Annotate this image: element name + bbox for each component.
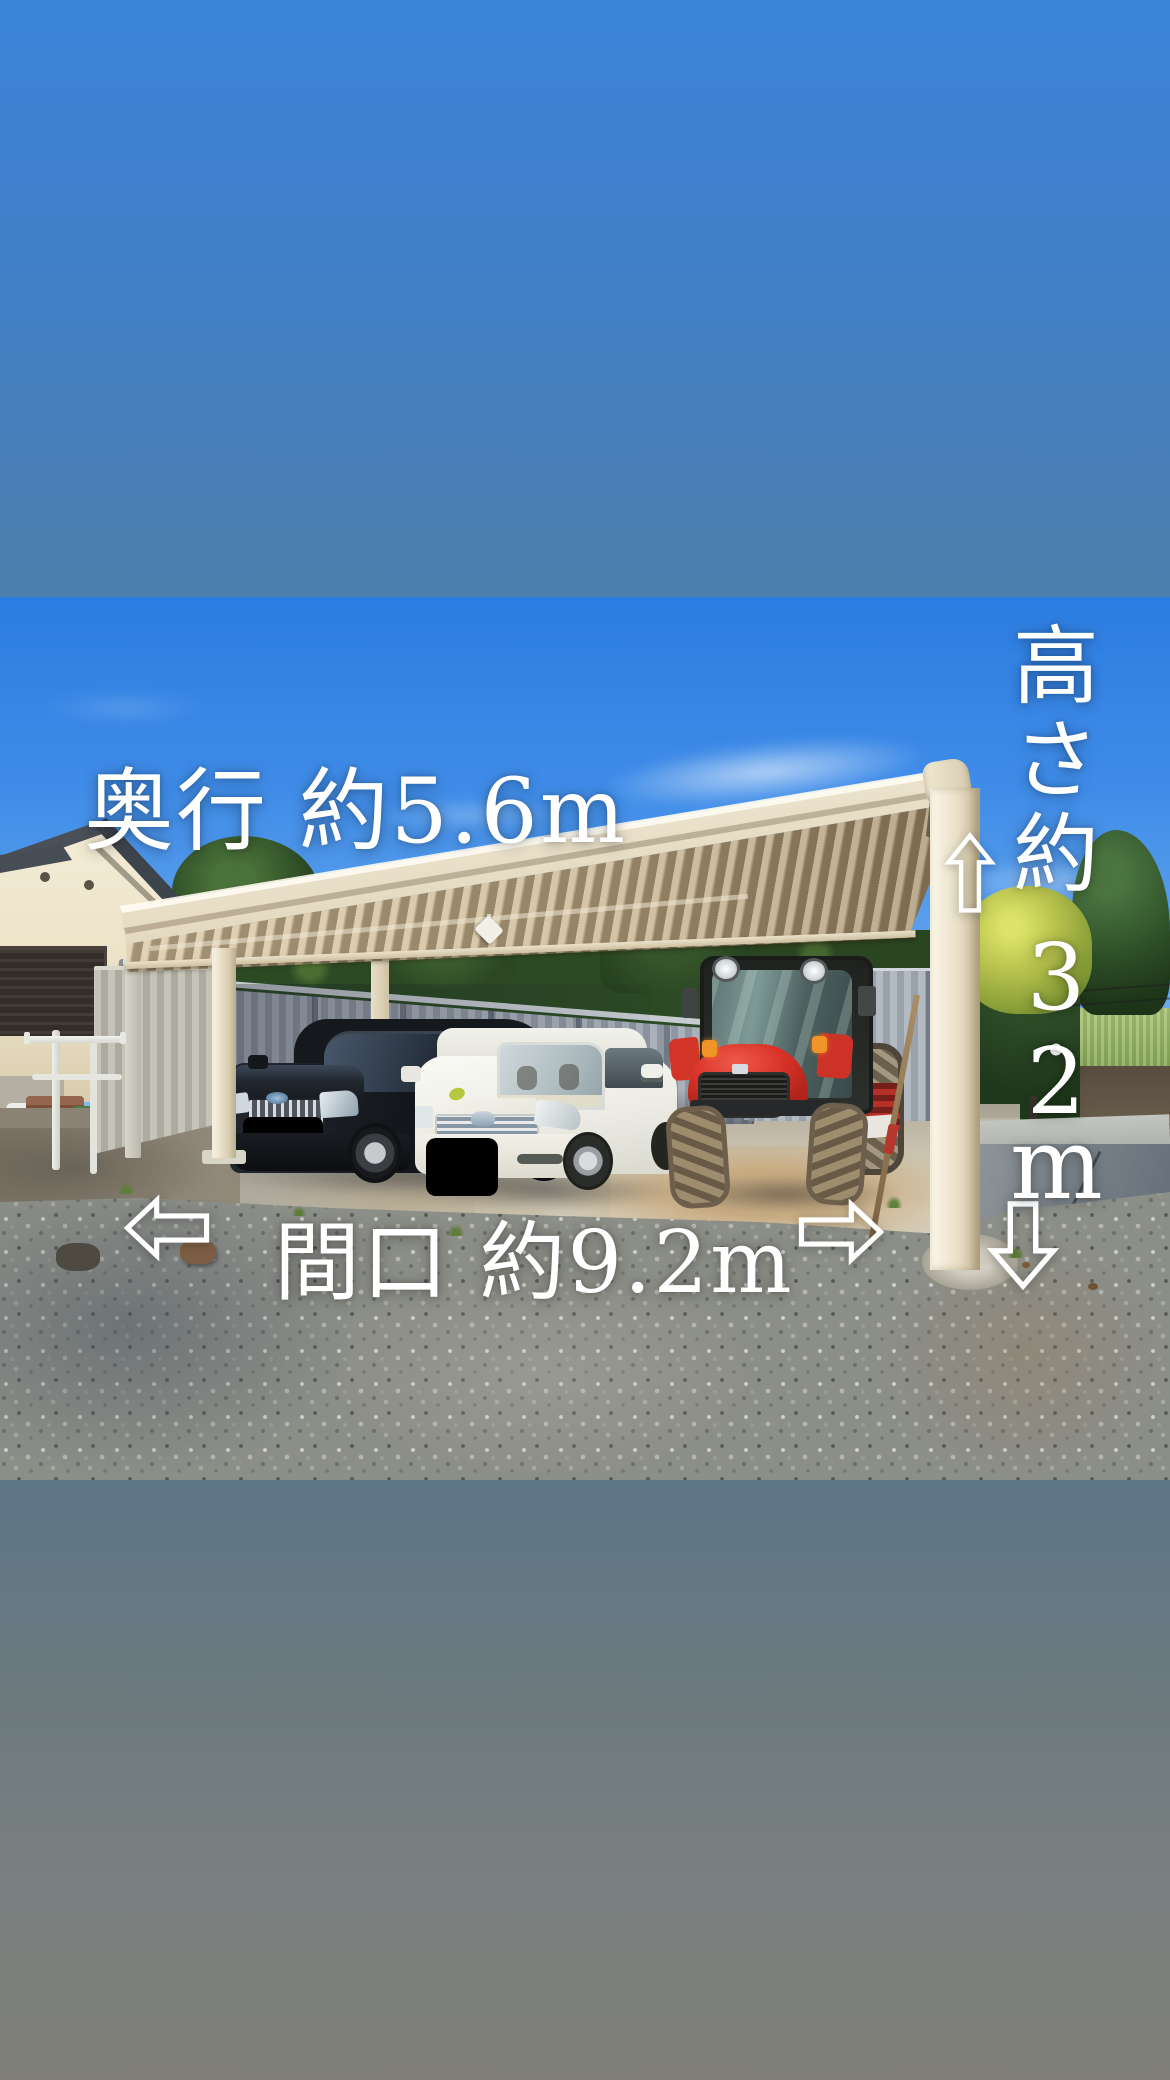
white-minivan bbox=[413, 1026, 681, 1206]
rock bbox=[56, 1243, 100, 1271]
tractor-signal bbox=[812, 1036, 827, 1053]
height-char: 高 bbox=[1010, 624, 1102, 710]
laundry-pole bbox=[90, 1036, 97, 1174]
height-char: さ bbox=[1010, 718, 1102, 804]
van-wheel bbox=[563, 1132, 613, 1190]
laundry-hook bbox=[120, 1032, 126, 1044]
van-mirror bbox=[401, 1066, 421, 1082]
tractor-headlight bbox=[800, 958, 828, 984]
van-seat bbox=[517, 1066, 537, 1090]
height-char: 約 bbox=[1010, 812, 1102, 898]
tractor-logo bbox=[732, 1064, 748, 1074]
debris bbox=[1088, 1283, 1098, 1290]
width-annotation: 間口 約9.2m bbox=[274, 1192, 794, 1317]
van-seat bbox=[559, 1064, 579, 1090]
carport-post-left bbox=[212, 948, 236, 1158]
tractor-headlight bbox=[712, 956, 740, 982]
height-char: m bbox=[1010, 1116, 1102, 1214]
tractor-signal bbox=[702, 1040, 717, 1057]
depth-annotation: 奥行 約5.6m bbox=[84, 738, 627, 868]
tractor-mirror bbox=[858, 986, 876, 1016]
van-wheel bbox=[348, 1123, 402, 1183]
up-arrow-icon bbox=[942, 832, 998, 914]
weed bbox=[886, 1196, 902, 1208]
fence-post bbox=[125, 962, 141, 1158]
photo: 奥行 約5.6m 間口 約9.2m 高 さ 約 3 . 2 m bbox=[0, 597, 1170, 1480]
laundry-hook bbox=[24, 1032, 30, 1044]
van-headlight bbox=[319, 1090, 359, 1119]
window-shutter bbox=[0, 946, 107, 1036]
story-canvas: 奥行 約5.6m 間口 約9.2m 高 さ 約 3 . 2 m bbox=[0, 0, 1170, 2080]
laundry-pole bbox=[52, 1030, 60, 1170]
photo-scene: 奥行 約5.6m 間口 約9.2m 高 さ 約 3 . 2 m bbox=[0, 597, 1170, 1480]
van-mirror bbox=[248, 1055, 268, 1069]
right-arrow-icon bbox=[798, 1198, 884, 1266]
laundry-bar bbox=[32, 1074, 122, 1080]
van-emblem bbox=[471, 1111, 495, 1127]
tractor-mirror bbox=[682, 988, 698, 1018]
left-arrow-icon bbox=[124, 1194, 210, 1262]
cloud bbox=[40, 690, 210, 726]
red-tractor bbox=[660, 948, 905, 1213]
tractor-front-tire bbox=[805, 1101, 870, 1207]
height-annotation: 高 さ 約 3 . 2 m bbox=[1010, 620, 1102, 1240]
license-plate-censor bbox=[426, 1138, 498, 1196]
van-emblem bbox=[266, 1092, 288, 1104]
wall-vent bbox=[84, 880, 94, 890]
van-headlight bbox=[415, 1106, 433, 1128]
fog-slot bbox=[517, 1154, 563, 1164]
laundry-bar bbox=[28, 1036, 124, 1043]
wall-vent bbox=[40, 872, 50, 882]
weed bbox=[118, 1182, 134, 1194]
